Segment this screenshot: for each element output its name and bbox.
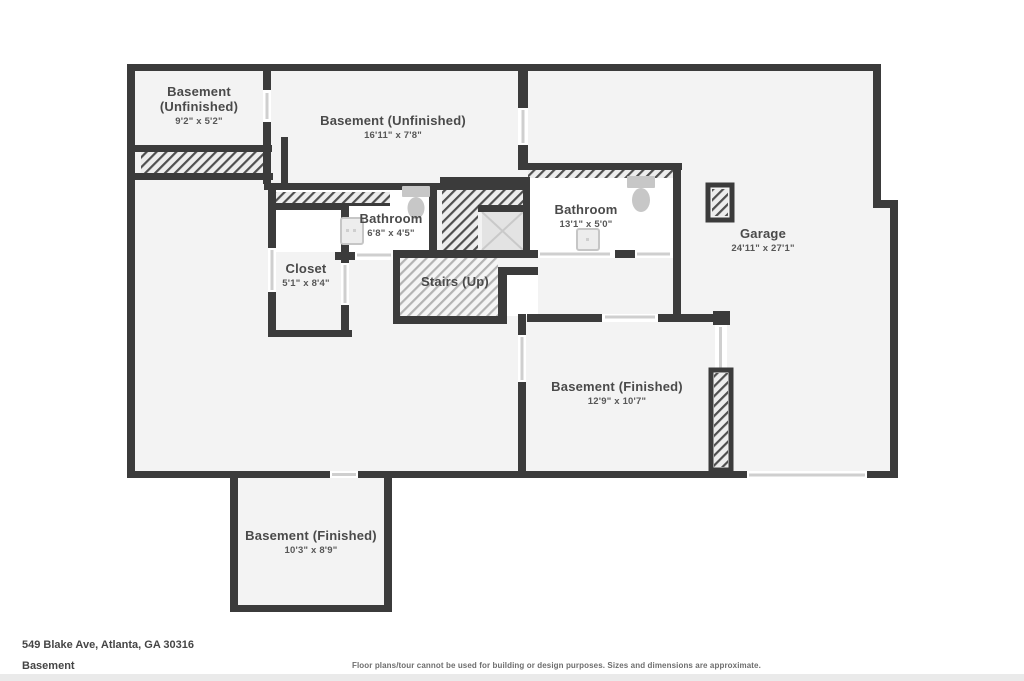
- wall: [127, 471, 330, 478]
- stair-landing-floor: [507, 275, 538, 316]
- door-line: [521, 337, 524, 380]
- wall: [230, 605, 392, 612]
- wall: [498, 267, 538, 275]
- room-dims: 12'9" x 10'7": [551, 396, 683, 407]
- sink-tap: [353, 229, 356, 232]
- wall: [890, 200, 898, 478]
- room-name: Bathroom: [360, 211, 423, 226]
- sink-tap: [346, 229, 349, 232]
- room-label-stairs: Stairs (Up): [421, 274, 489, 289]
- wall: [268, 203, 276, 248]
- garage-door-line: [749, 474, 865, 477]
- wall: [274, 203, 390, 206]
- hatch-wall: [714, 373, 728, 467]
- wall: [440, 177, 530, 185]
- wall: [384, 471, 392, 612]
- wall: [127, 173, 273, 180]
- wall: [127, 145, 272, 152]
- sink-icon: [577, 229, 599, 250]
- room-name: Garage: [731, 226, 794, 241]
- floor-name: Basement: [22, 660, 75, 672]
- hatch-pillar: [712, 189, 728, 216]
- wall: [658, 314, 713, 322]
- room-dims: 9'2" x 5'2": [143, 116, 255, 127]
- wall: [281, 137, 288, 186]
- wall: [527, 314, 602, 322]
- wall: [518, 314, 526, 335]
- hatch-wall: [274, 192, 390, 203]
- wall: [393, 250, 538, 258]
- wall: [127, 64, 135, 478]
- wall: [358, 471, 747, 478]
- door-line: [332, 473, 356, 476]
- room-name: Bathroom: [555, 202, 618, 217]
- wall: [673, 170, 681, 318]
- wall: [873, 64, 881, 207]
- room-dims: 10'3" x 8'9": [245, 545, 377, 556]
- window-line: [522, 110, 525, 143]
- wall: [127, 64, 881, 71]
- sink-tap: [586, 238, 589, 241]
- door-line: [357, 254, 391, 257]
- room-dims: 13'1" x 5'0": [555, 219, 618, 230]
- wall: [263, 64, 271, 90]
- room-name: Basement (Finished): [551, 379, 683, 394]
- room-label-basement-unfinished-1: Basement (Unfinished) 9'2" x 5'2": [143, 84, 255, 127]
- door-line: [540, 253, 610, 256]
- room-label-basement-unfinished-2: Basement (Unfinished) 16'11" x 7'8": [320, 113, 466, 141]
- room-name: Basement (Finished): [245, 528, 377, 543]
- door-line: [637, 253, 670, 256]
- disclaimer-text: Floor plans/tour cannot be used for buil…: [352, 661, 761, 670]
- room-label-closet: Closet 5'1" x 8'4": [282, 261, 329, 289]
- hatch-wall: [442, 185, 478, 250]
- wall: [335, 252, 355, 260]
- bottom-divider: [0, 674, 1024, 681]
- toilet-tank: [402, 186, 430, 197]
- room-dims: 5'1" x 8'4": [282, 278, 329, 289]
- wall: [268, 184, 276, 206]
- room-label-bathroom-1: Bathroom 6'8" x 4'5": [360, 211, 423, 239]
- wall: [518, 382, 526, 478]
- room-dims: 24'11" x 27'1": [731, 243, 794, 254]
- wall: [518, 64, 528, 108]
- toilet-bowl: [632, 188, 650, 212]
- door-line: [605, 316, 655, 319]
- x-marker-icon: [482, 212, 523, 250]
- wall: [518, 163, 682, 170]
- wall: [713, 311, 730, 325]
- door-line: [344, 265, 347, 303]
- wall: [341, 305, 349, 337]
- room-name: Basement (Unfinished): [320, 113, 466, 128]
- room-dims: 6'8" x 4'5": [360, 228, 423, 239]
- window-line: [719, 327, 722, 368]
- wall: [523, 177, 530, 255]
- wall: [230, 471, 238, 612]
- toilet-tank: [627, 176, 655, 188]
- wall: [498, 275, 507, 316]
- wall: [867, 471, 898, 478]
- wall: [393, 250, 400, 324]
- room-label-basement-finished-1: Basement (Finished) 12'9" x 10'7": [551, 379, 683, 407]
- wall: [615, 250, 635, 258]
- wall: [393, 316, 507, 324]
- room-name: Basement (Unfinished): [143, 84, 255, 114]
- door-line: [266, 93, 269, 119]
- room-name: Stairs (Up): [421, 274, 489, 289]
- wall: [429, 185, 437, 252]
- room-label-basement-finished-2: Basement (Finished) 10'3" x 8'9": [245, 528, 377, 556]
- hatch-wall: [141, 152, 265, 173]
- room-name: Closet: [282, 261, 329, 276]
- wall: [268, 330, 352, 337]
- room-label-garage: Garage 24'11" x 27'1": [731, 226, 794, 254]
- door-line: [271, 250, 274, 290]
- room-label-bathroom-2: Bathroom 13'1" x 5'0": [555, 202, 618, 230]
- floor-plan-page: Basement (Unfinished) 9'2" x 5'2" Baseme…: [0, 0, 1024, 681]
- room-dims: 16'11" x 7'8": [320, 130, 466, 141]
- wall: [478, 205, 530, 212]
- property-address: 549 Blake Ave, Atlanta, GA 30316: [22, 639, 194, 651]
